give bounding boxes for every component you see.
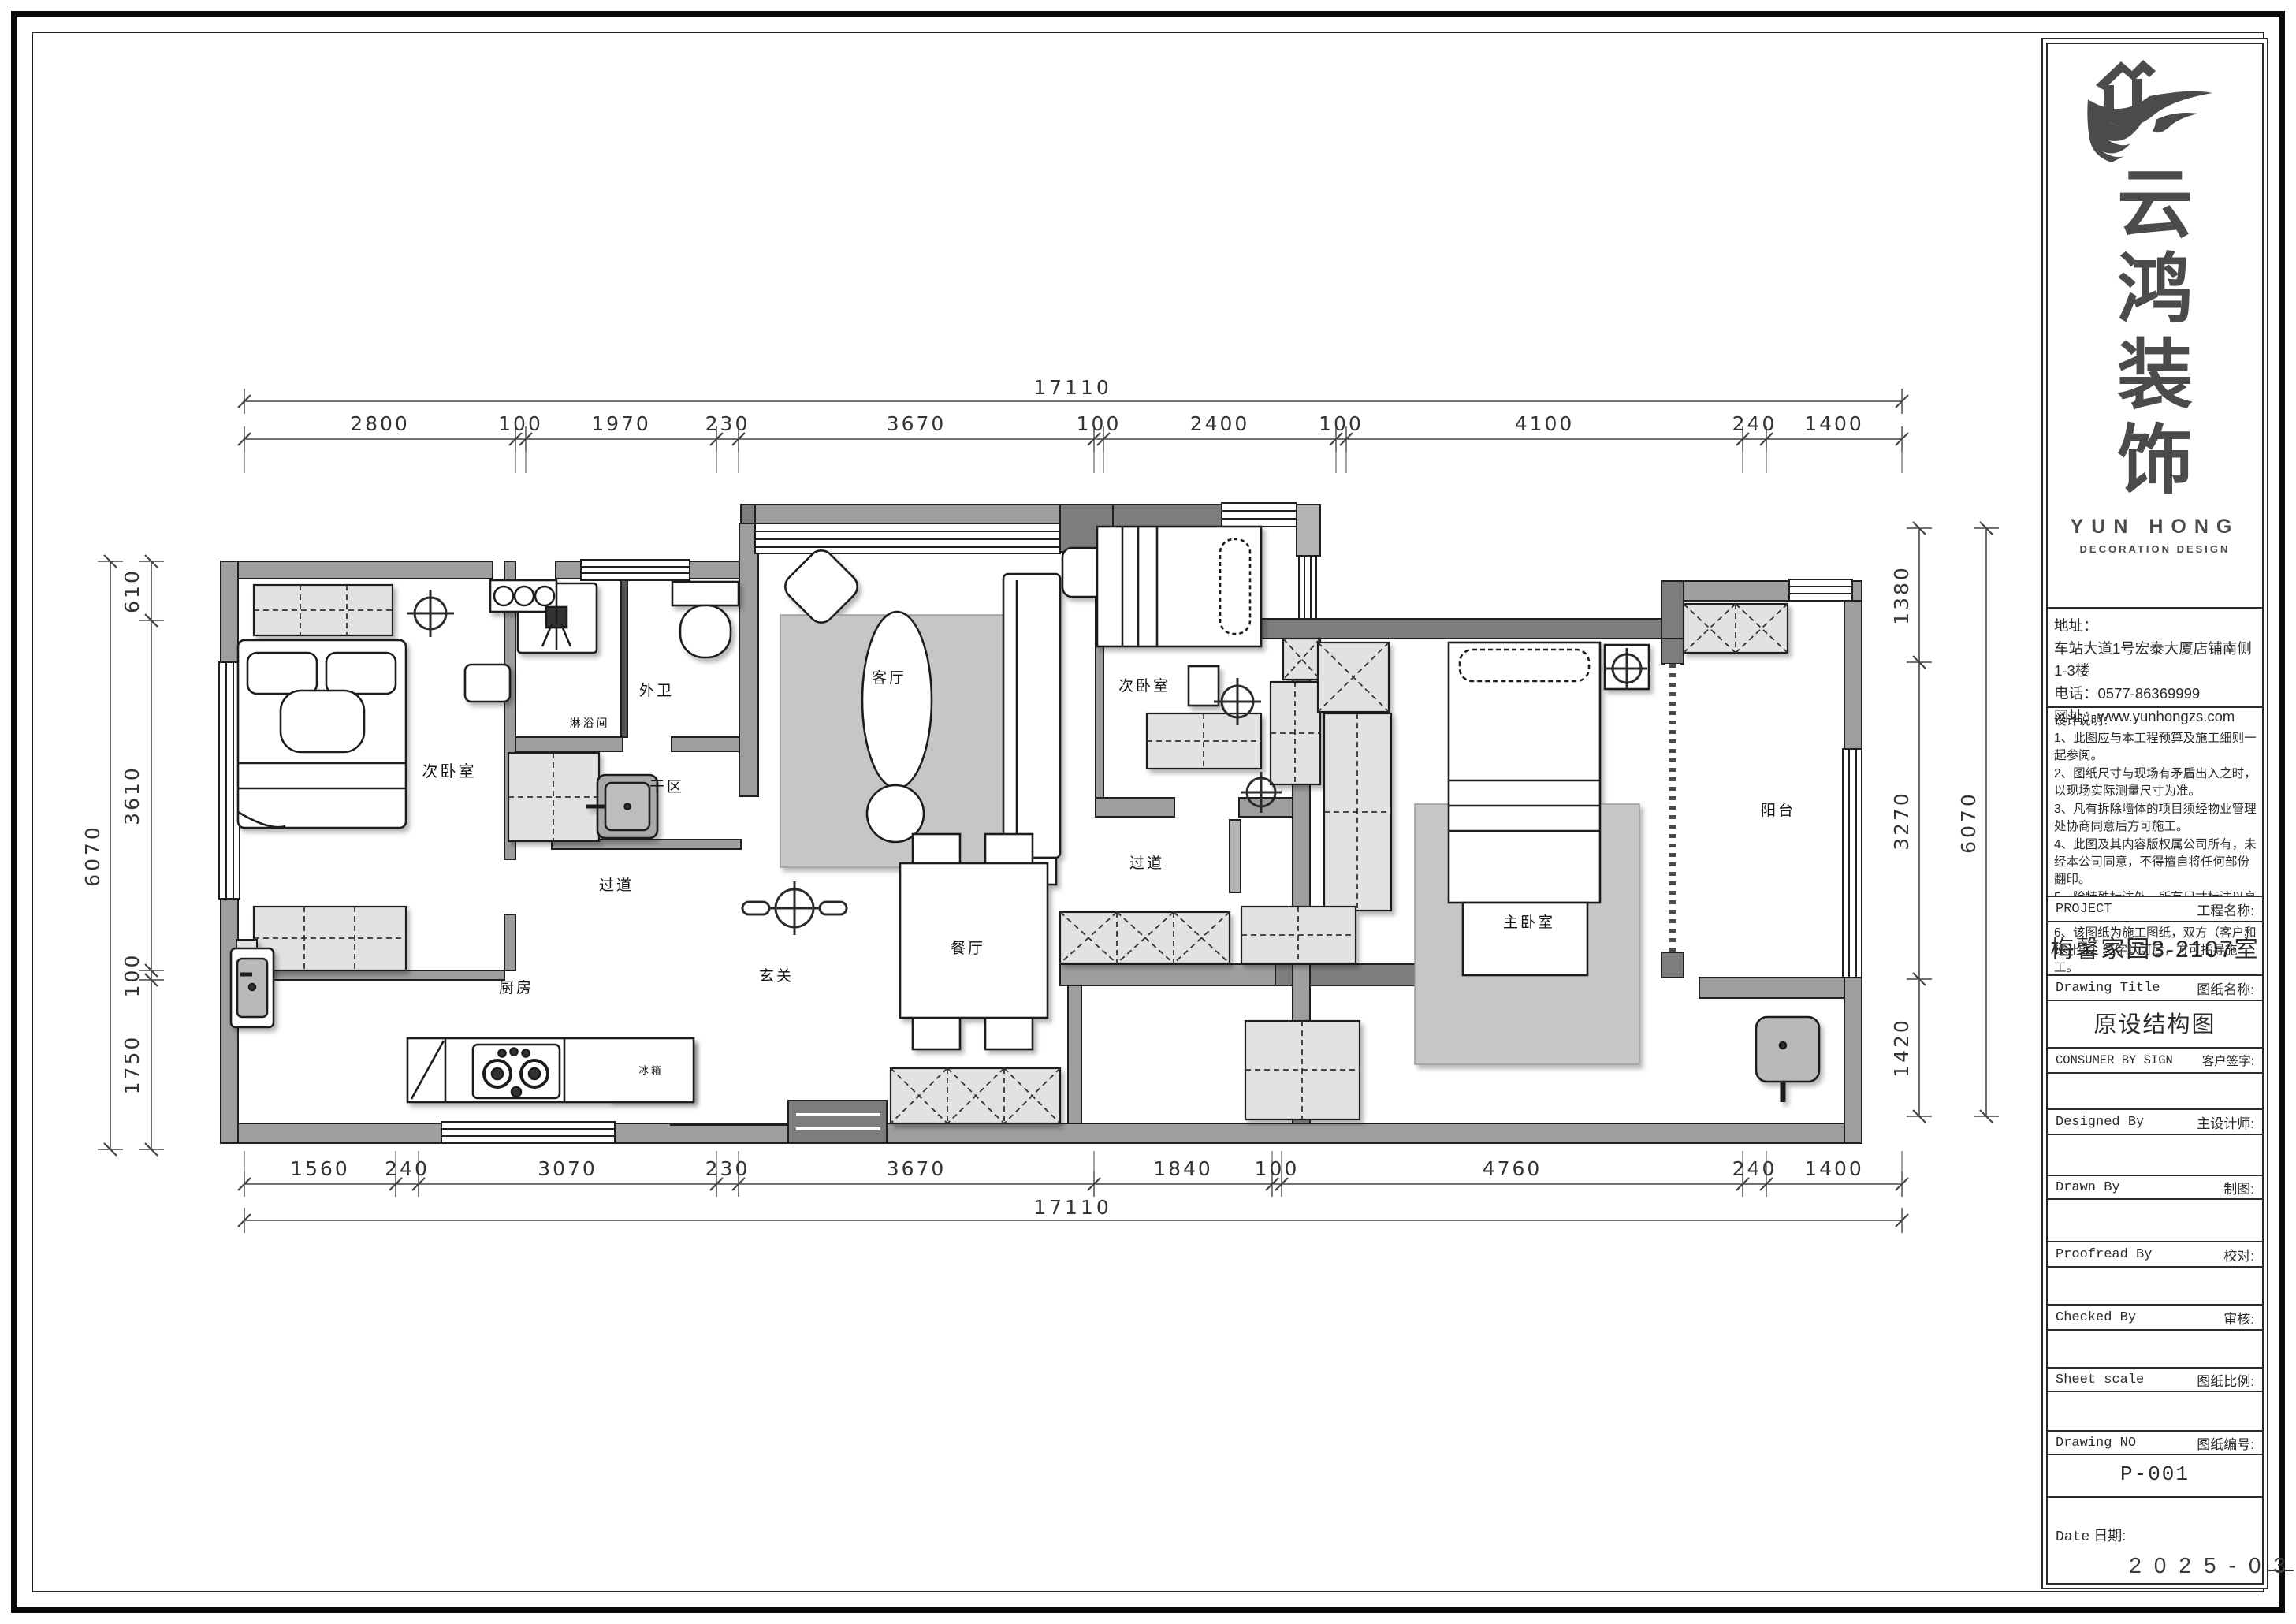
dim-label: 100	[498, 412, 543, 435]
nightstand	[465, 665, 510, 702]
title-block-inner: 云鸿装饰 YUN HONG DECORATION DESIGN 地址： 车站大道…	[2046, 43, 2264, 1585]
dim-label: 1400	[1804, 412, 1864, 435]
toilet-icon	[672, 582, 739, 657]
fan-symbol	[742, 881, 847, 935]
design-note: 2、图纸尺寸与现场有矛盾出入之时，以现场实际测量尺寸为准。	[2054, 765, 2257, 800]
dim-label: 3670	[887, 1157, 947, 1180]
room-label-living: 客厅	[872, 669, 906, 687]
company-name-vertical: 云鸿装饰	[2117, 162, 2193, 505]
dim-label: 230	[705, 1157, 750, 1180]
drawn-by-row: Drawn By 制图:	[2048, 1175, 2262, 1200]
room-label-dry-area: 干区	[649, 778, 684, 795]
dim-label: 3270	[1890, 791, 1913, 851]
checked-by-row: Checked By 审核:	[2048, 1304, 2262, 1331]
bed-icon	[238, 640, 406, 828]
dim-label: 240	[385, 1157, 430, 1180]
dim-label: 4760	[1483, 1157, 1542, 1180]
room-label-dining: 餐厅	[951, 940, 985, 957]
logo-birds-icon	[2080, 44, 2230, 162]
drawing-sheet: { "title_block": { "logo": {"chars": "云鸿…	[0, 0, 2296, 1624]
room-label-left-bedroom: 次卧室	[422, 762, 477, 780]
title-block: 云鸿装饰 YUN HONG DECORATION DESIGN 地址： 车站大道…	[2041, 38, 2268, 1589]
address-label: 地址：	[2054, 617, 2098, 634]
kitchen-sink-icon	[231, 948, 274, 1027]
design-note: 4、此图及其内容版权属公司所有，未经本公司同意，不得擅自将任何部份翻印。	[2054, 836, 2257, 888]
room-label-hallway-left: 过道	[599, 877, 634, 894]
dim-label: 3610	[121, 765, 143, 825]
dim-label: 240	[1732, 412, 1777, 435]
dim-label: 610	[121, 568, 143, 613]
company-subtitle: DECORATION DESIGN	[2080, 543, 2231, 555]
dim-label: 1400	[1804, 1157, 1864, 1180]
company-logo: 云鸿装饰 YUN HONG DECORATION DESIGN	[2048, 44, 2262, 607]
room-label-foyer: 玄关	[759, 967, 794, 985]
design-note: 3、凡有拆除墙体的项目须经物业管理处协商同意后方可施工。	[2054, 801, 2257, 836]
dim-label: 4100	[1515, 412, 1575, 435]
room-label-master: 主卧室	[1503, 914, 1555, 931]
logo-char: 鸿	[2117, 248, 2193, 333]
room-label-balcony: 阳台	[1761, 802, 1795, 819]
dim-label: 2800	[350, 412, 410, 435]
dim-label: 2400	[1190, 412, 1250, 435]
sheet-scale-row: Sheet scale 图纸比例:	[2048, 1367, 2262, 1392]
washing-machine-icon	[1756, 1017, 1819, 1102]
room-label-bath: 外卫	[639, 682, 674, 699]
dim-label: 100	[1077, 412, 1122, 435]
logo-char: 饰	[2117, 419, 2193, 504]
project-name: 梅馨家园3-2107室	[2048, 919, 2262, 974]
phone-label: 电话：	[2054, 685, 2098, 702]
dim-label: 3670	[887, 412, 947, 435]
bed2-icon	[1097, 527, 1261, 646]
floor-plan-svg: 2800100197023036701002400100410024014001…	[0, 0, 2296, 1624]
dim-label: 1560	[290, 1157, 350, 1180]
dim-label: 100	[1319, 412, 1364, 435]
logo-char: 云	[2117, 162, 2193, 248]
dim-label: 1970	[591, 412, 651, 435]
room-label-kitchen: 厨房	[499, 979, 534, 996]
stove-icon	[473, 1045, 560, 1098]
consumer-sign-row: CONSUMER BY SIGN 客户签字:	[2048, 1047, 2262, 1074]
dim-label: 230	[705, 412, 750, 435]
dim-label: 1380	[1890, 565, 1913, 625]
room-label-shower: 淋浴间	[570, 717, 610, 730]
room-label-hallway-right: 过道	[1129, 855, 1164, 872]
bedside-table2	[1189, 666, 1219, 706]
crosshair-symbol	[407, 590, 454, 637]
project-row: PROJECT 工程名称:	[2048, 896, 2262, 922]
design-notes: 设计说明： 1、此图应与本工程预算及施工细则一起参阅。2、图纸尺寸与现场有矛盾出…	[2048, 706, 2262, 902]
sink-icon	[586, 775, 657, 838]
company-contact: 地址： 车站大道1号宏泰大厦店铺南侧1-3楼 电话：0577-86369999 …	[2048, 607, 2262, 714]
dim-label: 1750	[121, 1035, 143, 1095]
dim-label: 1840	[1153, 1157, 1213, 1180]
dim-label: 6070	[1957, 791, 1980, 854]
dim-label: 3070	[538, 1157, 597, 1180]
design-note: 1、此图应与本工程预算及施工细则一起参阅。	[2054, 730, 2257, 765]
dim-label: 17110	[1033, 376, 1112, 399]
proofread-by-row: Proofread By 校对:	[2048, 1241, 2262, 1268]
drawing-title-row: Drawing Title 图纸名称:	[2048, 974, 2262, 1001]
date-box: Date 日期: 2025-03	[2048, 1496, 2262, 1583]
dim-label: 100	[1255, 1157, 1300, 1180]
room-label-bedroom2: 次卧室	[1118, 677, 1170, 695]
address-value: 车站大道1号宏泰大厦店铺南侧1-3楼	[2054, 638, 2256, 683]
dim-label: 240	[1732, 1157, 1777, 1180]
company-name-en: YUN HONG	[2071, 516, 2240, 538]
drawing-no-value: P-001	[2048, 1452, 2262, 1496]
dim-label: 17110	[1033, 1196, 1112, 1219]
notes-title: 设计说明：	[2054, 713, 2257, 730]
dim-label: 100	[121, 953, 143, 998]
drawing-title-value: 原设结构图	[2048, 998, 2262, 1047]
room-label-fridge: 冰箱	[638, 1064, 663, 1076]
dim-label: 6070	[81, 824, 104, 887]
date-value: 2025-03	[2129, 1553, 2296, 1578]
designed-by-row: Designed By 主设计师:	[2048, 1108, 2262, 1135]
furniture-layer	[231, 527, 1819, 1102]
phone-value: 0577-86369999	[2098, 685, 2201, 702]
coffee-table-icon	[862, 612, 932, 842]
dim-label: 1420	[1890, 1018, 1913, 1078]
logo-char: 装	[2117, 333, 2193, 419]
